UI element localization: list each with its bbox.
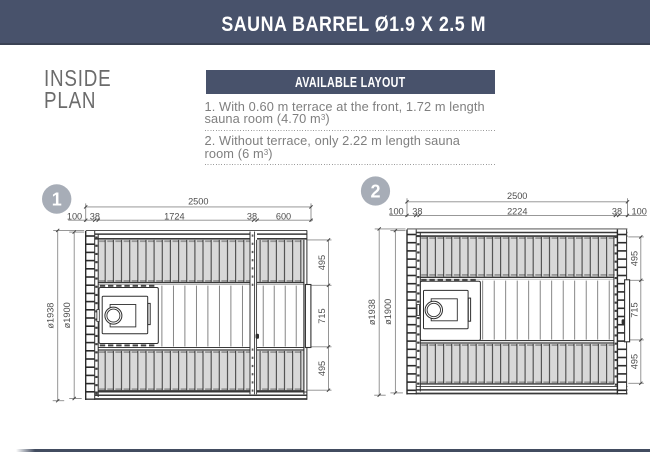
svg-text:38: 38 bbox=[247, 211, 257, 221]
svg-text:ø1900: ø1900 bbox=[62, 302, 72, 328]
svg-text:600: 600 bbox=[276, 211, 291, 221]
svg-text:715: 715 bbox=[317, 308, 327, 323]
svg-text:ø1938: ø1938 bbox=[367, 299, 377, 325]
svg-text:495: 495 bbox=[317, 361, 327, 376]
svg-text:2500: 2500 bbox=[188, 196, 208, 206]
svg-text:2: 2 bbox=[370, 181, 380, 201]
svg-text:1724: 1724 bbox=[164, 211, 184, 221]
svg-text:2500: 2500 bbox=[507, 191, 527, 201]
svg-text:38: 38 bbox=[412, 207, 422, 217]
svg-text:ø1938: ø1938 bbox=[46, 303, 56, 329]
svg-text:100: 100 bbox=[388, 207, 403, 217]
svg-text:ø1900: ø1900 bbox=[383, 299, 393, 325]
svg-text:1: 1 bbox=[52, 189, 62, 209]
svg-text:100: 100 bbox=[632, 207, 647, 217]
svg-text:38: 38 bbox=[612, 207, 622, 217]
svg-text:38: 38 bbox=[90, 211, 100, 221]
svg-text:495: 495 bbox=[317, 255, 327, 270]
svg-text:495: 495 bbox=[629, 354, 639, 369]
svg-text:2224: 2224 bbox=[507, 207, 527, 217]
svg-text:715: 715 bbox=[629, 302, 639, 317]
svg-text:495: 495 bbox=[629, 251, 639, 266]
svg-text:100: 100 bbox=[67, 211, 82, 221]
